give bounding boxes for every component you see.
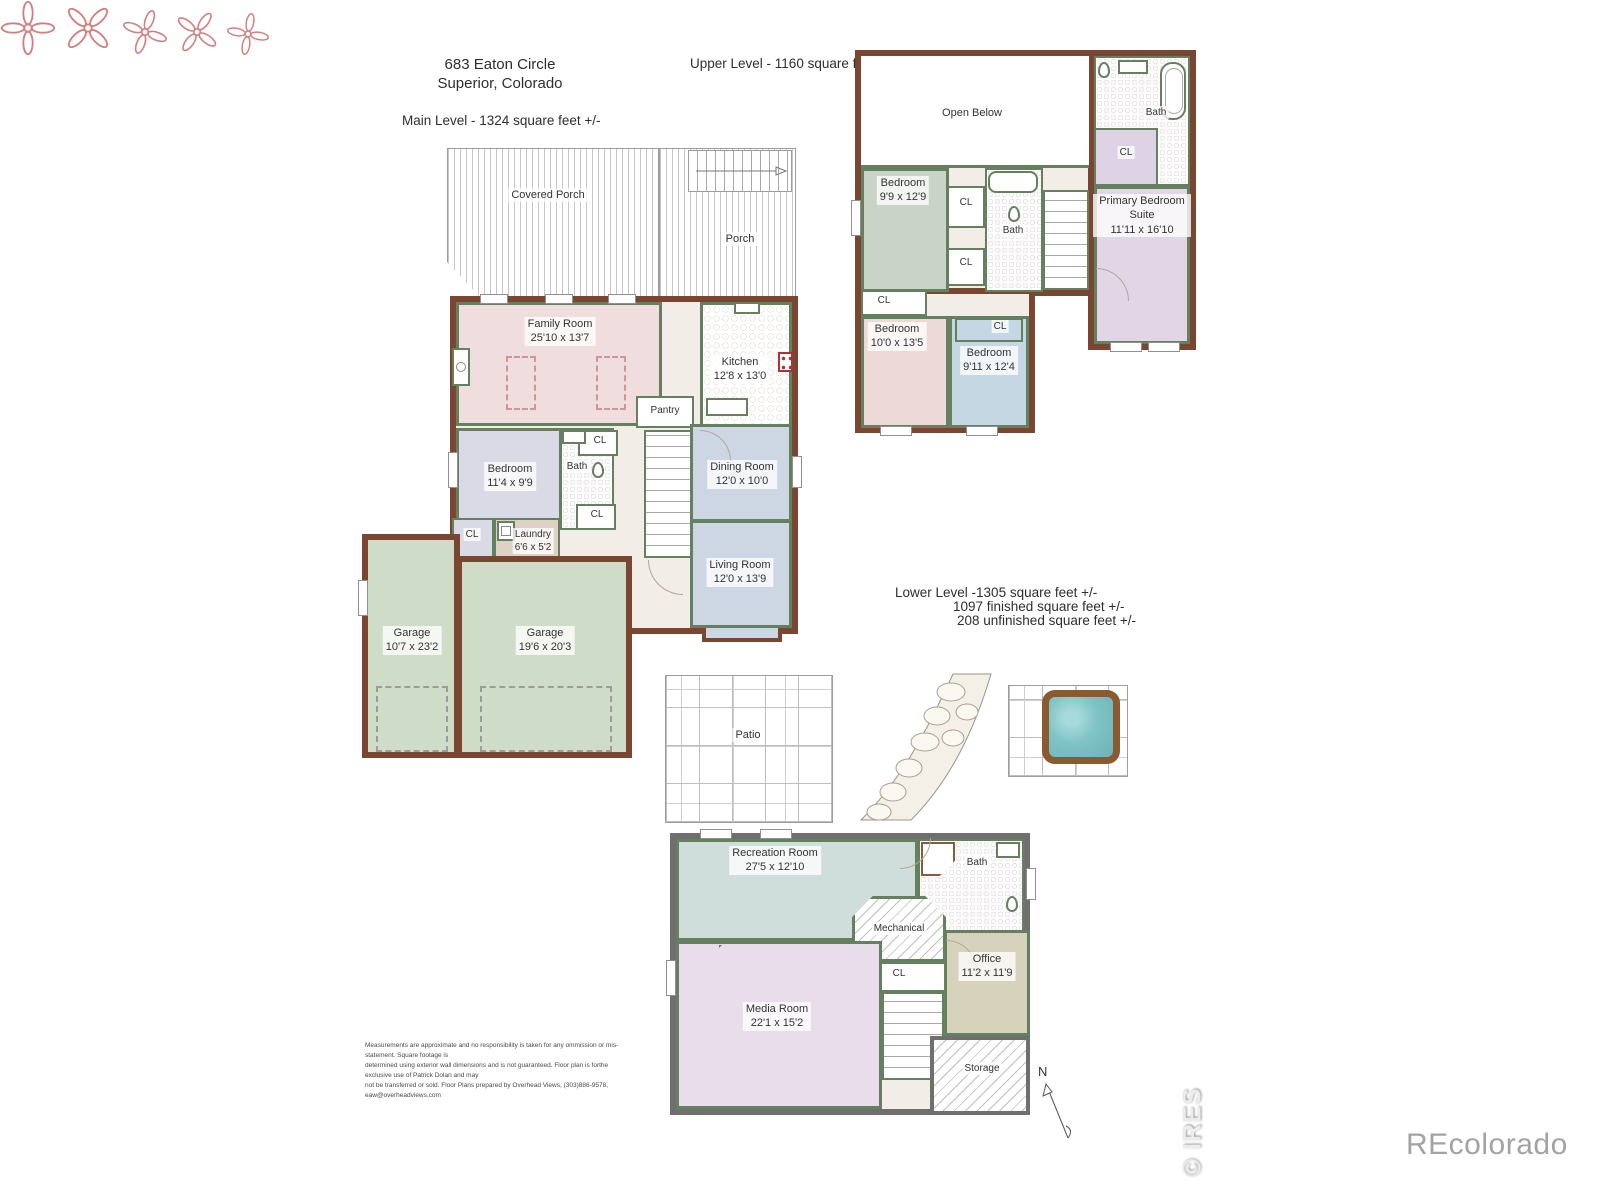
room-name: Covered Porch <box>511 188 584 202</box>
upper-bedroom-b-label: Bedroom 10'0 x 13'5 <box>868 322 927 351</box>
closet-label: CL <box>592 434 609 447</box>
room-name: Bedroom <box>487 462 533 476</box>
closet <box>955 318 1023 342</box>
room-name: CL <box>893 967 906 980</box>
living-room-label: Living Room 12'0 x 13'9 <box>706 558 773 587</box>
room-dims: 10'0 x 13'5 <box>871 336 924 350</box>
room-name: Patio <box>735 728 760 742</box>
closet-label: CL <box>876 294 893 307</box>
primary-closet-label: CL <box>1118 146 1135 159</box>
window <box>545 294 573 304</box>
disclaimer-line3: not be transferred or sold. Floor Plans … <box>365 1081 630 1101</box>
bathtub-icon <box>988 171 1038 193</box>
room-dims: 22'1 x 15'2 <box>746 1016 808 1030</box>
lower-level-label-1: Lower Level -1305 square feet +/- <box>895 585 1097 600</box>
closet <box>861 290 927 316</box>
room-name: Media Room <box>746 1002 808 1016</box>
disclaimer: Measurements are approximate and no resp… <box>365 1041 630 1101</box>
family-room-label: Family Room 25'10 x 13'7 <box>525 317 596 346</box>
room-dims: 12'0 x 13'9 <box>709 572 770 586</box>
bathroom-sink-icon <box>562 430 586 444</box>
porch-label: Porch <box>723 232 758 246</box>
garage-small-label: Garage 10'7 x 23'2 <box>383 626 442 655</box>
room-dims: 11'4 x 9'9 <box>487 476 533 490</box>
open-below-label: Open Below <box>939 106 1005 120</box>
window <box>1110 342 1142 352</box>
window <box>608 294 636 304</box>
patio-area <box>665 675 833 823</box>
room-name: Kitchen <box>714 355 767 369</box>
room-name: Laundry <box>515 528 552 541</box>
storage-label: Storage <box>962 1062 1001 1075</box>
room-name: Garage <box>386 626 439 640</box>
room-dims: 9'9 x 12'9 <box>880 190 926 204</box>
dining-room-label: Dining Room 12'0 x 10'0 <box>707 460 777 489</box>
room-name: CL <box>878 294 891 307</box>
room-name: Bedroom <box>871 322 924 336</box>
room-dims: 10'7 x 23'2 <box>386 640 439 654</box>
media-room-label: Media Room 22'1 x 15'2 <box>743 1002 811 1031</box>
room-dims: 6'6 x 5'2 <box>515 541 552 554</box>
room-name: Bedroom <box>963 346 1015 360</box>
compass-north-icon <box>1030 1076 1090 1146</box>
room-name: CL <box>594 434 607 447</box>
room-dims: 11'11 x 16'10 <box>1096 223 1188 237</box>
window <box>792 456 802 488</box>
ceiling-fan-icon <box>0 0 56 56</box>
room-name: Office <box>962 952 1013 966</box>
window <box>1148 342 1180 352</box>
recreation-room-label: Recreation Room 27'5 x 12'10 <box>729 846 821 875</box>
office-label: Office 11'2 x 11'9 <box>959 952 1016 981</box>
room-name: CL <box>591 508 604 521</box>
upper-stairs <box>1043 190 1089 290</box>
ceiling-fan-icon <box>60 0 116 56</box>
room-name: Recreation Room <box>732 846 818 860</box>
window-seat-outline <box>506 356 536 410</box>
room-dims: 12'0 x 10'0 <box>710 474 774 488</box>
room-name: Open Below <box>942 106 1002 120</box>
room-name: CL <box>960 196 973 209</box>
bathroom-sink-icon <box>1118 60 1148 74</box>
room-name: Garage <box>519 626 572 640</box>
patio-label: Patio <box>732 728 763 742</box>
floorplan-page: 683 Eaton Circle Superior, Colorado Main… <box>0 0 1600 1200</box>
kitchen-label: Kitchen 12'8 x 13'0 <box>711 355 770 384</box>
room-name: Storage <box>964 1062 999 1075</box>
bathroom-sink-icon <box>996 842 1020 858</box>
covered-porch-label: Covered Porch <box>508 188 587 202</box>
ceiling-fan-icon <box>173 8 221 56</box>
room-name: CL <box>466 528 479 541</box>
room-dims: 11'2 x 11'9 <box>962 966 1013 980</box>
garage-door-outline <box>376 686 448 752</box>
toilet-icon <box>592 462 604 478</box>
fireplace-icon <box>452 348 470 386</box>
closet-label: CL <box>958 196 975 209</box>
room-dims: 12'8 x 13'0 <box>714 369 767 383</box>
room-dims: 27'5 x 12'10 <box>732 860 818 874</box>
window <box>851 200 861 236</box>
window <box>966 426 998 436</box>
window-seat-outline <box>596 356 626 410</box>
recolorado-watermark: REcolorado <box>1406 1128 1568 1162</box>
ceiling-fan-icon <box>121 8 169 56</box>
disclaimer-line2: determined using exterior wall dimension… <box>365 1061 630 1081</box>
toilet-icon <box>1098 62 1110 78</box>
bay-window <box>702 628 782 642</box>
main-level-label: Main Level - 1324 square feet +/- <box>402 113 601 128</box>
room-name: Dining Room <box>710 460 774 474</box>
room-name: Bath <box>567 460 588 473</box>
address-line2: Superior, Colorado <box>400 75 600 92</box>
closet-label: CL <box>958 256 975 269</box>
stone-wall-path <box>833 668 1033 828</box>
mechanical-label: Mechanical <box>872 922 927 935</box>
kitchen-island <box>706 398 748 416</box>
room-dims: 9'11 x 12'4 <box>963 360 1015 374</box>
upper-bedroom-a-label: Bedroom 9'9 x 12'9 <box>877 176 929 205</box>
room-dims: 25'10 x 13'7 <box>528 331 593 345</box>
window <box>480 294 508 304</box>
room-name: Bath <box>967 856 988 869</box>
ires-watermark: © IRES <box>1178 1088 1207 1178</box>
main-stairs <box>644 430 692 558</box>
room-name: Mechanical <box>874 922 925 935</box>
lower-level-label-2: 1097 finished square feet +/- <box>953 599 1125 614</box>
closet-label: CL <box>589 508 606 521</box>
room-name: CL <box>960 256 973 269</box>
closet-label: CL <box>464 528 481 541</box>
covered-porch-area <box>447 148 659 298</box>
toilet-icon <box>1008 206 1020 222</box>
stove-icon <box>778 352 793 372</box>
stair-direction-arrow-icon <box>692 158 788 184</box>
room-name: Bath <box>1146 106 1167 119</box>
room-name: Pantry <box>651 404 680 417</box>
garage-large-label: Garage 19'6 x 20'3 <box>516 626 575 655</box>
window <box>448 452 458 488</box>
main-bath-label: Bath <box>565 460 590 473</box>
kitchen-sink-icon <box>734 302 760 314</box>
window <box>666 960 676 996</box>
window <box>1026 868 1036 900</box>
room-dims: 19'6 x 20'3 <box>519 640 572 654</box>
lower-level-label-3: 208 unfinished square feet +/- <box>957 613 1136 628</box>
room-name: Primary Bedroom Suite <box>1096 194 1188 223</box>
address-line1: 683 Eaton Circle <box>400 56 600 73</box>
lower-bath-label: Bath <box>965 856 990 869</box>
room-name: Porch <box>726 232 755 246</box>
primary-suite-label: Primary Bedroom Suite 11'11 x 16'10 <box>1093 194 1191 237</box>
hall-bath-label: Bath <box>1001 224 1026 237</box>
room-name: Living Room <box>709 558 770 572</box>
window <box>700 829 732 839</box>
closet-label: CL <box>891 967 908 980</box>
window <box>880 426 912 436</box>
ceiling-fan-icon <box>226 12 270 56</box>
disclaimer-line1: Measurements are approximate and no resp… <box>365 1041 630 1061</box>
laundry-label: Laundry 6'6 x 5'2 <box>513 528 554 554</box>
garage-door-outline <box>480 686 612 752</box>
room-name: CL <box>994 320 1007 333</box>
room-name: Bedroom <box>880 176 926 190</box>
hot-tub <box>1042 690 1120 764</box>
window <box>358 580 368 616</box>
toilet-icon <box>1006 896 1018 912</box>
room-name: Family Room <box>528 317 593 331</box>
upper-bedroom-c-label: Bedroom 9'11 x 12'4 <box>960 346 1018 375</box>
storage-room <box>930 1036 1030 1115</box>
room-name: Bath <box>1003 224 1024 237</box>
primary-bath-label: Bath <box>1144 106 1169 119</box>
pantry-label: Pantry <box>649 404 682 417</box>
room-name: CL <box>1120 146 1133 159</box>
main-bedroom-label: Bedroom 11'4 x 9'9 <box>484 462 536 491</box>
closet-label: CL <box>992 320 1009 333</box>
window <box>760 829 792 839</box>
